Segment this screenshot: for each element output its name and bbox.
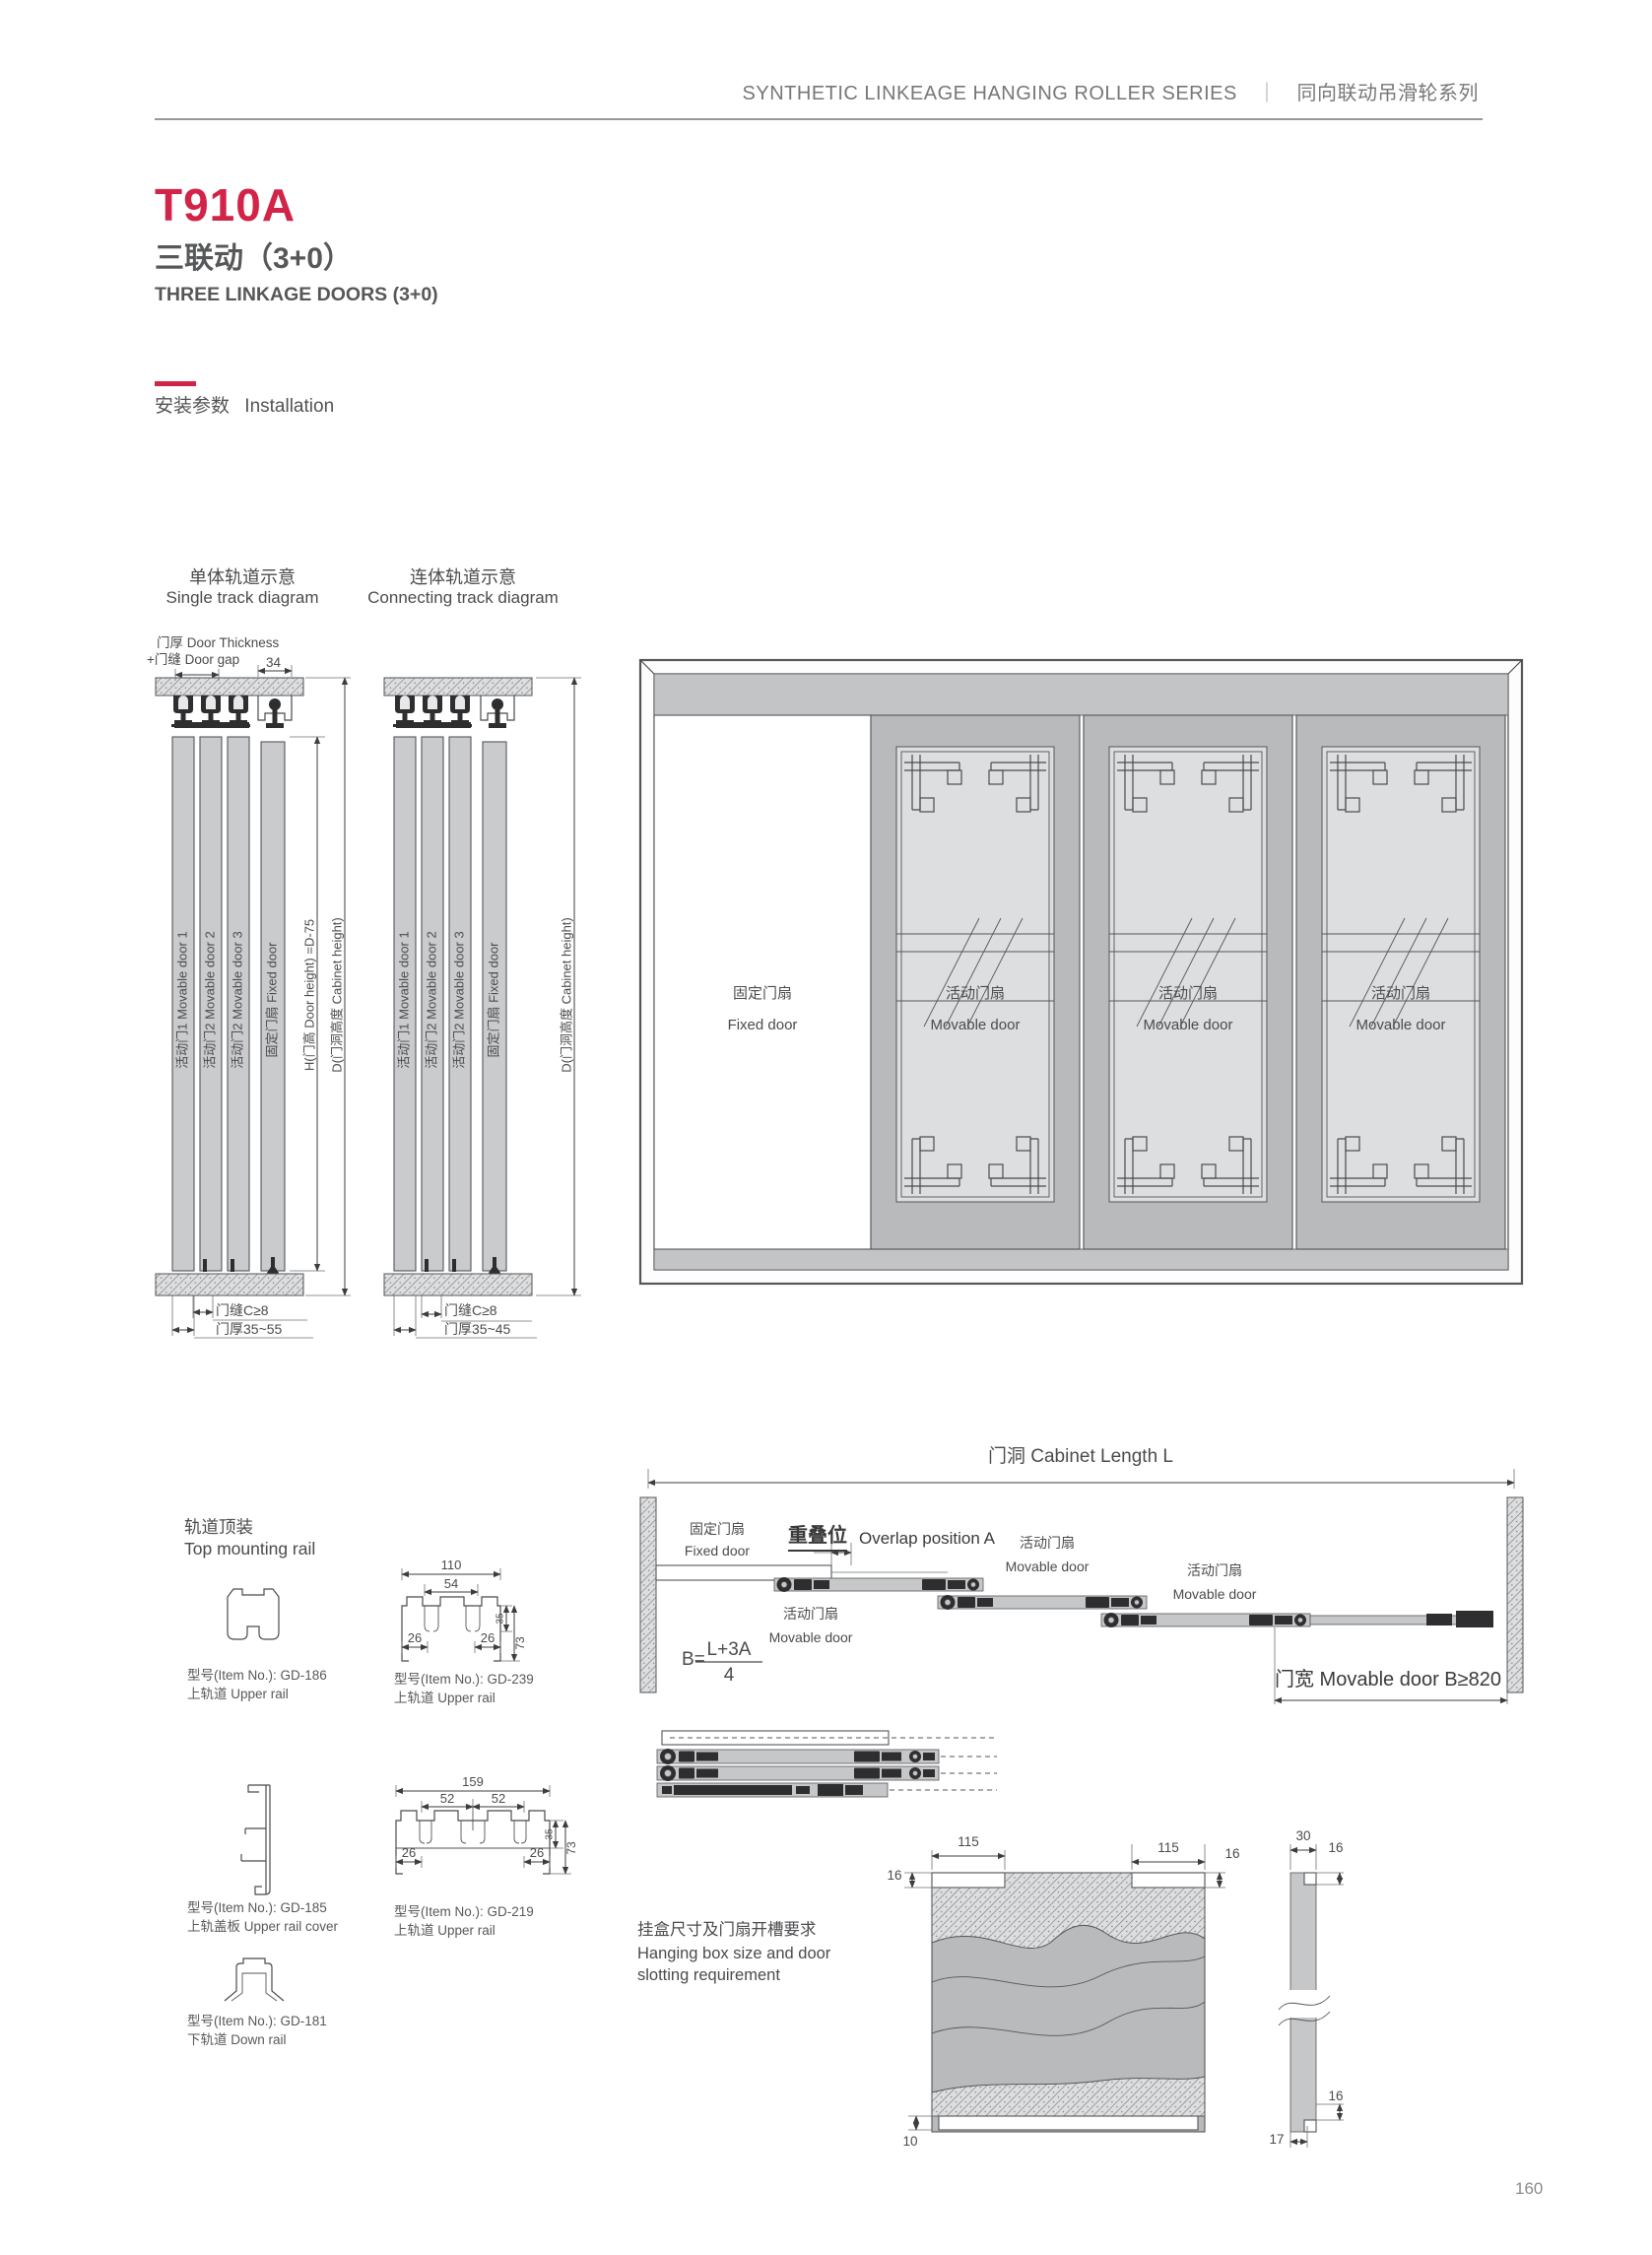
gd219-dim-35: 35 [544,1828,556,1839]
gd239-dim-26a: 26 [408,1631,422,1646]
single-door2-label: 活动门2 Movable door 2 [204,931,219,1068]
gd186-name: 上轨道 Upper rail [187,1687,289,1702]
gd185-item-no: 型号(Item No.): GD-185 [187,1900,327,1916]
gd219-dim-26b: 26 [530,1846,544,1861]
connecting-track-title-cn: 连体轨道示意 [345,567,581,588]
single-track-title-en: Single track diagram [124,588,361,608]
cabinet-fixed-door-en: Fixed door [728,1017,798,1033]
overlap-position-en: Overlap position A [859,1529,995,1549]
catalog-page: SYNTHETIC LINKEAGE HANGING ROLLER SERIES… [0,0,1652,2255]
connecting-track-title: 连体轨道示意 Connecting track diagram [345,567,581,607]
hangbox-note-en2: slotting requirement [637,1966,780,1985]
cabinet-movable-door3-en: Movable door [1356,1017,1446,1033]
gd186-item-no: 型号(Item No.): GD-186 [187,1668,327,1684]
hangbox-dim-115b: 115 [1157,1840,1179,1856]
cabinet-movable-door3-cn: 活动门扇 [1371,985,1430,1002]
product-model: T910A [155,179,296,232]
rails-title-cn: 轨道顶装 [184,1517,253,1537]
gd219-dim-26a: 26 [402,1846,416,1861]
gd239-dim-110: 110 [441,1559,462,1573]
formula-numerator: L+3A [707,1639,752,1661]
rails-title-en: Top mounting rail [184,1539,315,1559]
length-movable2-cn: 活动门扇 [1187,1562,1242,1578]
single-dim-door-height: H(门高 Door height) =D-75 [303,919,318,1071]
hangbox-note-cn: 挂盒尺寸及门扇开槽要求 [637,1921,817,1940]
cabinet-length-title: 门洞 Cabinet Length L [988,1446,1173,1468]
gd239-dim-26b: 26 [481,1631,495,1646]
stacked-rails-drawing [657,1731,997,1797]
gd219-dim-52a: 52 [440,1792,454,1807]
gd239-dim-73: 73 [514,1636,528,1649]
cabinet-fixed-door-cn: 固定门扇 [733,985,792,1002]
gd185-name: 上轨盖板 Upper rail cover [187,1919,338,1935]
door-panel-1 [896,747,1054,1202]
length-movable1-cn: 活动门扇 [1020,1535,1075,1551]
hangbox-dim-16c: 16 [1328,1840,1343,1856]
gd181-name: 下轨道 Down rail [187,2032,287,2048]
length-fixed-door-cn: 固定门扇 [690,1521,745,1537]
technical-drawings [0,0,1652,2255]
series-title-en: SYNTHETIC LINKEAGE HANGING ROLLER SERIES [743,83,1237,104]
door-panel-2 [1109,747,1267,1202]
movable-door-width-note: 门宽 Movable door B≥820 [1275,1669,1501,1691]
length-movable3-cn: 活动门扇 [783,1606,838,1622]
product-type-cn: 三联动（3+0） [155,242,353,277]
gd239-item-no: 型号(Item No.): GD-239 [394,1672,534,1688]
length-movable3-en: Movable door [769,1629,853,1645]
overlap-position-cn: 重叠位 [788,1525,847,1552]
cabinet-front-view [640,660,1522,1284]
connecting-dim-cabinet-height: D(门洞高度 Cabinet height) [561,917,575,1073]
connecting-door1-label: 活动门1 Movable door 1 [398,931,413,1068]
hangbox-dim-10: 10 [902,2134,917,2150]
gd219-dim-159: 159 [462,1775,484,1790]
gd219-name: 上轨道 Upper rail [394,1923,496,1939]
series-title-cn: 同向联动吊滑轮系列 [1297,83,1480,104]
cabinet-movable-door2-cn: 活动门扇 [1158,985,1218,1002]
single-thickness-dim: 门厚35~55 [216,1321,282,1337]
section-accent-dash [155,381,196,386]
connecting-track-drawing [384,678,581,1338]
cabinet-movable-door1-cn: 活动门扇 [946,985,1005,1002]
single-fixed-door-label: 固定门扇 Fixed door [266,942,281,1057]
gd219-dim-52b: 52 [492,1792,505,1807]
gd239-name: 上轨道 Upper rail [394,1691,496,1706]
hanging-box-drawing [904,1844,1344,2148]
gd239-dim-35: 35 [495,1613,506,1624]
single-track-title: 单体轨道示意 Single track diagram [124,567,361,607]
hangbox-dim-16b: 16 [1224,1846,1239,1862]
header-rule [155,118,1483,120]
product-type-en: THREE LINKAGE DOORS (3+0) [155,284,438,305]
gd219-dim-73: 73 [565,1841,579,1854]
page-header: SYNTHETIC LINKEAGE HANGING ROLLER SERIES… [743,83,1479,105]
hangbox-dim-16a: 16 [887,1868,901,1884]
gd181-item-no: 型号(Item No.): GD-181 [187,2014,327,2029]
single-gap-dim: 门缝C≥8 [216,1302,269,1318]
connecting-door2-label: 活动门2 Movable door 2 [426,931,440,1068]
door-thickness-note: 门厚 Door Thickness [157,635,279,651]
connecting-gap-dim: 门缝C≥8 [444,1302,497,1318]
connecting-door3-label: 活动门2 Movable door 3 [453,931,468,1068]
header-separator: ｜ [1257,83,1278,104]
hangbox-dim-115a: 115 [958,1834,979,1850]
hangbox-dim-16d: 16 [1328,2089,1343,2104]
section-title-en: Installation [244,396,334,417]
length-fixed-door-en: Fixed door [685,1543,750,1559]
gd239-dim-54: 54 [444,1577,458,1592]
connecting-track-title-en: Connecting track diagram [345,588,581,608]
length-movable1-en: Movable door [1006,1559,1090,1574]
door-panel-3 [1322,747,1480,1202]
dim-34: 34 [266,655,281,671]
connecting-fixed-door-label: 固定门扇 Fixed door [488,942,502,1057]
single-door3-label: 活动门2 Movable door 3 [231,931,246,1068]
hangbox-dim-17: 17 [1269,2132,1284,2148]
section-title: 安装参数 Installation [155,396,334,418]
section-title-cn: 安装参数 [155,396,230,417]
cabinet-movable-door2-en: Movable door [1144,1017,1233,1033]
gd219-item-no: 型号(Item No.): GD-219 [394,1904,534,1920]
page-number: 160 [1515,2179,1543,2199]
single-dim-cabinet-height: D(门洞高度 Cabinet height) [331,917,346,1073]
hangbox-dim-30: 30 [1295,1828,1310,1844]
formula-denominator: 4 [724,1665,735,1687]
single-track-title-cn: 单体轨道示意 [124,567,361,588]
length-movable2-en: Movable door [1173,1586,1257,1602]
door-gap-note: +门缝 Door gap [147,652,239,668]
cabinet-movable-door1-en: Movable door [931,1017,1021,1033]
hangbox-note-en1: Hanging box size and door [637,1945,830,1963]
connecting-thickness-dim: 门厚35~45 [444,1321,510,1337]
formula-lhs: B= [682,1649,705,1671]
single-door1-label: 活动门1 Movable door 1 [176,931,191,1068]
